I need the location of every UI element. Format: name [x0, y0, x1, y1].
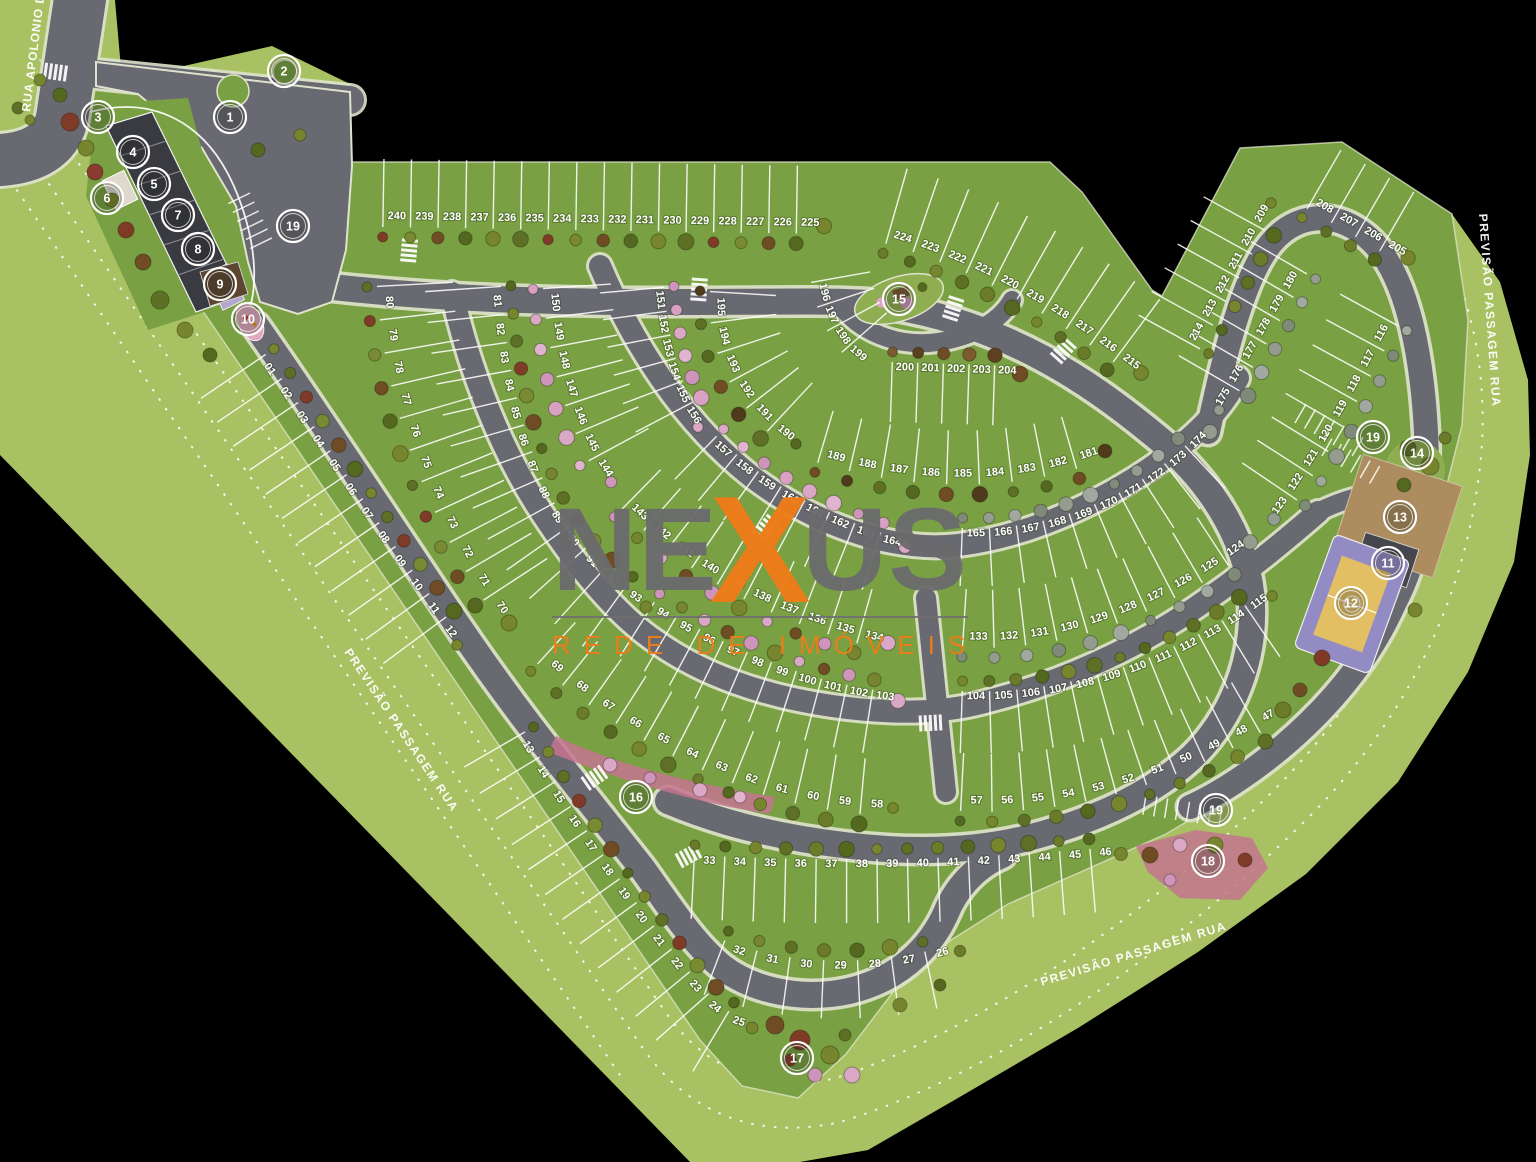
amenity-marker-6: 6 [91, 182, 123, 214]
amenity-marker-19: 19 [277, 210, 309, 242]
lot-number: 184 [985, 466, 1005, 480]
amenity-marker-4: 4 [117, 136, 149, 168]
lot-number: 38 [856, 858, 868, 870]
svg-text:19: 19 [1209, 804, 1223, 818]
lot-number: 237 [470, 211, 489, 223]
lot-number: 132 [1000, 629, 1019, 642]
svg-text:13: 13 [1393, 511, 1407, 525]
amenity-marker-19: 19 [1200, 794, 1232, 826]
lot-number: 33 [703, 854, 716, 867]
lot-number: 232 [608, 214, 627, 226]
lot-number: 230 [663, 214, 682, 226]
lot-number: 186 [921, 466, 940, 479]
lot-number: 58 [871, 798, 884, 811]
lot-number: 166 [994, 525, 1013, 539]
lot-number: 105 [994, 689, 1013, 702]
lot-number: 204 [998, 364, 1018, 377]
svg-text:14: 14 [1410, 447, 1424, 461]
svg-text:7: 7 [175, 209, 182, 223]
lot-number: 103 [875, 689, 895, 703]
svg-text:9: 9 [217, 278, 224, 292]
lot-number: 79 [386, 328, 400, 342]
svg-text:17: 17 [790, 1052, 804, 1066]
amenity-marker-7: 7 [162, 199, 194, 231]
svg-text:5: 5 [151, 178, 158, 192]
amenity-marker-11: 11 [1372, 547, 1404, 579]
lot-number: 43 [1008, 853, 1021, 866]
lot-number: 233 [580, 213, 599, 225]
lot-number: 29 [834, 960, 846, 972]
lot-number: 202 [947, 363, 966, 376]
amenity-marker-18: 18 [1192, 845, 1224, 877]
lot-number: 165 [967, 527, 985, 539]
amenity-marker-13: 13 [1384, 501, 1416, 533]
lot-number: 45 [1069, 849, 1082, 862]
svg-text:1: 1 [227, 111, 234, 125]
svg-text:18: 18 [1201, 855, 1215, 869]
lot-number: 185 [954, 468, 972, 480]
lot-number: 78 [391, 360, 405, 374]
svg-text:4: 4 [130, 146, 137, 160]
amenity-marker-17: 17 [781, 1042, 813, 1074]
lot-number: 80 [383, 296, 396, 309]
lot-number: 39 [886, 858, 898, 870]
svg-text:15: 15 [892, 293, 906, 307]
amenity-marker-2: 2 [268, 55, 300, 87]
lot-number: 228 [718, 215, 737, 227]
lot-number: 56 [1001, 794, 1014, 807]
lot-number: 187 [889, 462, 909, 476]
amenity-marker-15: 15 [883, 283, 915, 315]
svg-text:3: 3 [95, 111, 102, 125]
lot-number: 240 [388, 210, 407, 222]
lot-number: 236 [498, 212, 517, 224]
lot-number: 150 [548, 293, 562, 312]
svg-text:6: 6 [104, 192, 111, 206]
amenity-marker-12: 12 [1335, 587, 1367, 619]
lot-number: 30 [800, 958, 813, 971]
lot-number: 83 [497, 350, 511, 364]
lot-number: 151 [653, 290, 667, 310]
lot-number: 60 [806, 789, 820, 803]
svg-text:19: 19 [1366, 431, 1380, 445]
lot-number: 227 [746, 216, 765, 228]
amenity-marker-8: 8 [182, 233, 214, 265]
lot-number: 225 [801, 217, 820, 229]
lot-number: 28 [868, 958, 881, 971]
lot-number: 229 [691, 215, 710, 227]
lot-number: 35 [764, 857, 777, 869]
amenity-marker-16: 16 [620, 781, 652, 813]
lot-number: 81 [491, 294, 504, 307]
lot-number: 37 [825, 858, 837, 870]
lot-number: 195 [714, 297, 727, 316]
amenity-marker-5: 5 [138, 168, 170, 200]
lot-number: 133 [969, 631, 988, 643]
lot-number: 238 [443, 211, 462, 223]
svg-text:2: 2 [281, 65, 288, 79]
amenity-marker-3: 3 [82, 101, 114, 133]
amenity-marker-19: 19 [1357, 421, 1389, 453]
site-plan-stage: 2402392382372362352342332322312302292282… [0, 0, 1536, 1162]
lot-number: 82 [493, 322, 506, 336]
svg-text:16: 16 [629, 791, 643, 805]
amenity-marker-9: 9 [204, 268, 236, 300]
lot-number: 200 [896, 361, 915, 374]
lot-number: 40 [917, 857, 930, 869]
lot-number: 234 [553, 213, 572, 225]
lot-number: 235 [525, 212, 544, 224]
amenity-marker-14: 14 [1401, 437, 1433, 469]
lot-number: 36 [795, 858, 807, 870]
svg-text:8: 8 [195, 243, 202, 257]
lot-number: 231 [636, 214, 655, 226]
lot-number: 239 [415, 211, 434, 223]
lot-number: 41 [947, 856, 960, 868]
lot-number: 59 [838, 795, 852, 808]
lot-number: 203 [972, 364, 991, 377]
lot-number: 42 [977, 855, 990, 868]
lot-number: 104 [967, 690, 986, 702]
lot-number: 31 [765, 952, 779, 966]
lot-number: 106 [1021, 686, 1041, 700]
amenity-marker-10: 10 [232, 303, 264, 335]
lot-number: 46 [1099, 846, 1112, 859]
lot-number: 55 [1031, 791, 1045, 804]
lot-number: 57 [970, 794, 982, 806]
lot-number: 44 [1038, 851, 1052, 864]
lot-number: 201 [921, 362, 940, 375]
svg-text:12: 12 [1344, 597, 1358, 611]
svg-text:11: 11 [1381, 557, 1394, 571]
lot-number: 226 [773, 216, 792, 228]
svg-text:19: 19 [286, 220, 300, 234]
lot-number: 27 [902, 953, 916, 967]
lot-number: 34 [734, 856, 748, 868]
amenity-marker-1: 1 [214, 101, 246, 133]
master-plan-map: 2402392382372362352342332322312302292282… [0, 0, 1536, 1162]
svg-text:10: 10 [241, 313, 255, 327]
